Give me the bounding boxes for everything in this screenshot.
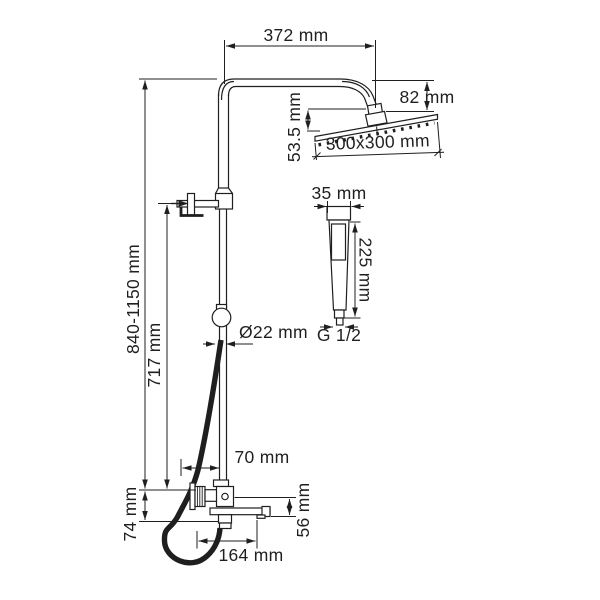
dim-column-height: 840-1150 mm — [123, 79, 217, 490]
hand-shower-fitting — [335, 310, 345, 318]
dim-head-drop: 82 mm — [372, 81, 454, 112]
dim-spout-reach: 164 mm — [197, 520, 284, 565]
handle-stem — [205, 490, 217, 502]
dim-handshower-width-label: 35 mm — [312, 183, 367, 203]
slider-knob — [212, 305, 231, 327]
mixer-handle — [195, 487, 205, 507]
bend-inner-line — [222, 82, 235, 101]
dim-handshower-length-label: 225 mm — [356, 237, 376, 302]
dim-mixer-to-outlet-label: 74 mm — [120, 487, 140, 542]
dim-handshower-length: 225 mm — [345, 222, 376, 318]
dim-bracket-to-mixer: 717 mm — [144, 204, 176, 489]
shower-column — [216, 94, 233, 480]
dim-pipe-diameter-label: Ø22 mm — [239, 322, 308, 342]
dim-wall-to-column-label: 70 mm — [235, 447, 290, 467]
diverter-button — [222, 493, 228, 499]
hand-shower — [327, 207, 351, 326]
dim-handshower-thread-label: G 1/2 — [317, 325, 361, 345]
dim-handshower-thread: G 1/2 — [317, 325, 361, 345]
hose-nut — [220, 523, 232, 529]
hose-fitting — [219, 515, 232, 523]
dim-bracket-to-mixer-label: 717 mm — [144, 322, 164, 387]
dim-head-drop-label: 82 mm — [400, 87, 455, 107]
dim-head-size-label: 300x300 mm — [325, 130, 430, 154]
technical-drawing-canvas: 372 mm 82 mm 53.5 mm 300x300 mm — [0, 0, 600, 600]
dim-top-width-label: 372 mm — [263, 25, 328, 45]
dim-spout-reach-label: 164 mm — [218, 545, 283, 565]
dim-spout-drop-label: 56 mm — [293, 483, 313, 538]
mixer-collar — [214, 480, 229, 487]
hand-shower-cap — [327, 207, 351, 221]
hand-shower-thread-stem — [337, 318, 344, 325]
dimension-annotations: 372 mm 82 mm 53.5 mm 300x300 mm — [120, 25, 454, 565]
wall-bracket — [171, 194, 219, 216]
shower-system-diagram: 372 mm 82 mm 53.5 mm 300x300 mm — [0, 0, 600, 600]
aerator — [257, 515, 265, 518]
shower-hose — [164, 340, 221, 563]
handle-flange — [190, 483, 195, 510]
dim-head-joint-height-label: 53.5 mm — [284, 92, 304, 162]
dim-column-height-label: 840-1150 mm — [123, 244, 143, 354]
